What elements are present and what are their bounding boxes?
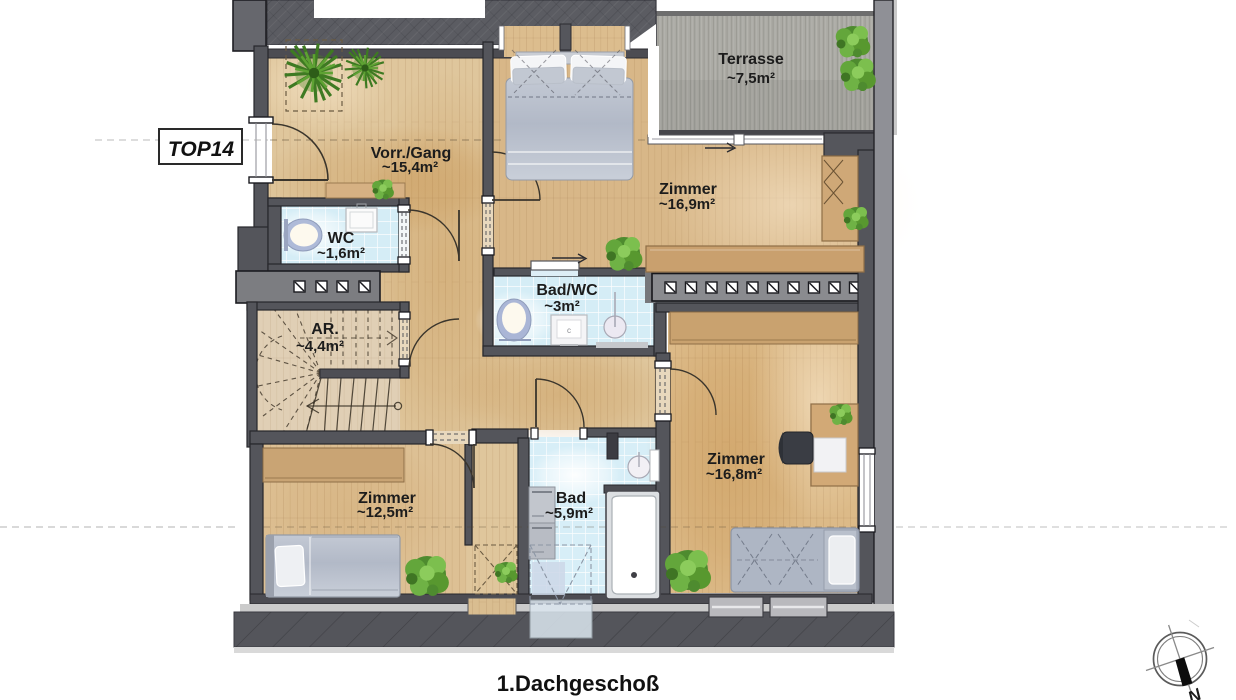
svg-text:~16,8m²: ~16,8m²: [706, 466, 762, 483]
svg-text:AR.: AR.: [311, 321, 339, 338]
svg-text:~15,4m²: ~15,4m²: [382, 159, 438, 176]
svg-text:~16,9m²: ~16,9m²: [659, 196, 715, 213]
svg-text:N: N: [1185, 685, 1205, 700]
svg-text:~5,9m²: ~5,9m²: [545, 505, 593, 522]
svg-text:c: c: [567, 326, 571, 335]
svg-text:~3m²: ~3m²: [544, 298, 579, 315]
svg-text:Bad/WC: Bad/WC: [536, 282, 598, 299]
svg-text:TOP14: TOP14: [168, 138, 234, 161]
svg-text:~12,5m²: ~12,5m²: [357, 504, 413, 521]
svg-text:Terrasse: Terrasse: [718, 51, 784, 68]
svg-text:~4,4m²: ~4,4m²: [296, 338, 344, 355]
svg-text:~1,6m²: ~1,6m²: [317, 245, 365, 262]
svg-text:1.Dachgeschoß: 1.Dachgeschoß: [497, 671, 660, 696]
svg-text:~7,5m²: ~7,5m²: [727, 70, 775, 87]
